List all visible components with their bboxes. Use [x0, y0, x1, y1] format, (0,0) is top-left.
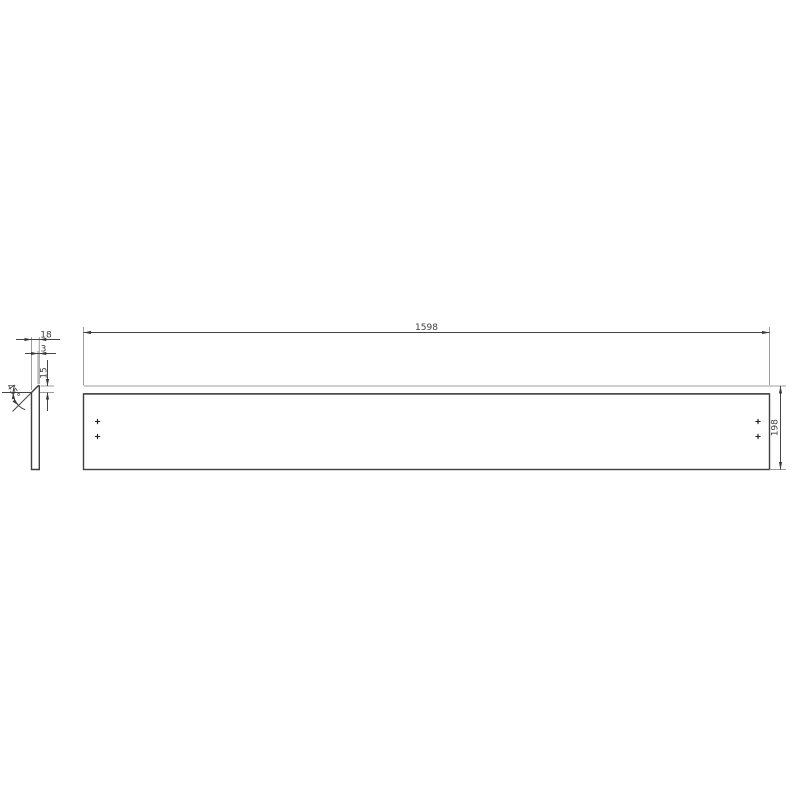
dimension-arrow	[31, 352, 38, 355]
panel-outline	[84, 394, 770, 470]
dimension-label: 18	[40, 331, 52, 341]
dimension-label: 15	[40, 367, 50, 378]
dimension-label: 45°	[4, 382, 21, 401]
dimension-arrow	[46, 393, 49, 400]
dimension-arrow	[779, 462, 782, 470]
dimension-edge-thickness: 3	[25, 345, 56, 356]
dimension-height: 198	[771, 386, 783, 470]
dimension-label: 3	[41, 345, 47, 355]
part-outline	[32, 386, 40, 470]
dimension-label: 1598	[415, 323, 438, 333]
dimension-length: 1598	[84, 323, 770, 334]
side-view: 18 3 15 45°	[2, 331, 60, 470]
dimension-arrow	[762, 331, 770, 334]
dimension-arrow	[779, 386, 782, 394]
dimension-thickness: 18	[16, 331, 60, 342]
dimension-arrow	[46, 379, 49, 386]
drawing-svg: 18 3 15 45°	[0, 0, 800, 800]
dimension-arrow	[84, 331, 92, 334]
dimension-arrow	[25, 338, 32, 341]
front-view: 1598 198	[84, 323, 787, 470]
dimension-label: 198	[771, 419, 781, 436]
technical-drawing: 18 3 15 45°	[0, 0, 800, 800]
